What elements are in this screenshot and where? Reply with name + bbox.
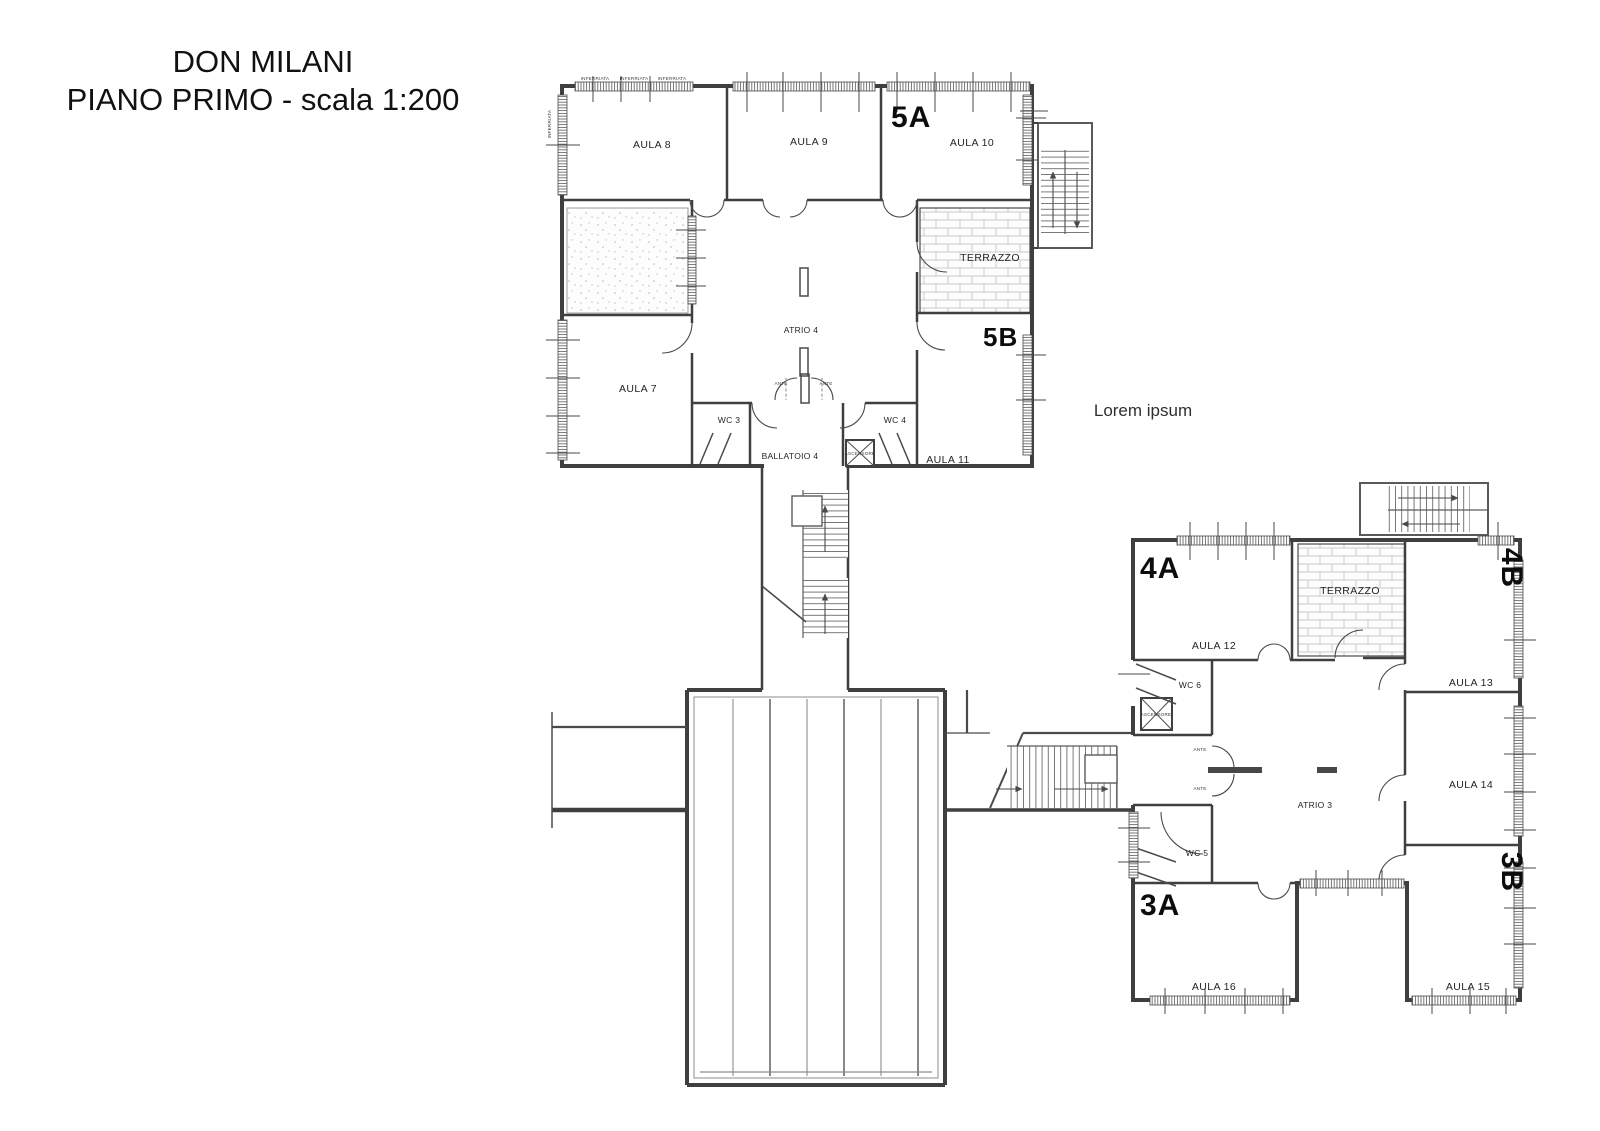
label-aula15: AULA 15 xyxy=(1446,981,1490,993)
upper-doors xyxy=(662,200,947,428)
label-ante-2: ANTE xyxy=(819,381,832,386)
upper-exterior-stair xyxy=(1032,123,1092,248)
label-atrio3: ATRIO 3 xyxy=(1298,800,1333,810)
stair-diagonal-wall xyxy=(762,586,806,622)
upper-door-leaves xyxy=(786,378,822,400)
label-inferriata-3: INFERRIATA xyxy=(658,76,687,81)
stair-landing-box xyxy=(792,496,822,526)
lower-doors xyxy=(1161,630,1405,899)
lower-exterior-stair xyxy=(1360,483,1488,535)
label-aula11: AULA 11 xyxy=(926,454,969,466)
label-aula14: AULA 14 xyxy=(1449,779,1493,791)
label-ante-4: ANTE xyxy=(1193,786,1206,791)
label-inferriata-1: INFERRIATA xyxy=(581,76,610,81)
lower-terrazzo-paving xyxy=(1298,544,1405,656)
label-atrio4: ATRIO 4 xyxy=(784,325,819,335)
atrio3-wall-stub-1 xyxy=(1208,767,1262,773)
label-3b: 3B xyxy=(1495,852,1528,892)
label-ante-3: ANTE xyxy=(1193,747,1206,752)
label-aula10: AULA 10 xyxy=(950,137,994,149)
label-aula16: AULA 16 xyxy=(1192,981,1236,993)
floor-plan-page: DON MILANI PIANO PRIMO - scala 1:200 Lor… xyxy=(0,0,1600,1131)
label-wc4: WC 4 xyxy=(884,415,906,425)
floor-plan-drawing: DON MILANI PIANO PRIMO - scala 1:200 Lor… xyxy=(0,0,1600,1131)
label-aula7: AULA 7 xyxy=(619,383,657,395)
central-stairwell xyxy=(762,466,848,690)
upper-building: AULA 8 AULA 9 AULA 10 5A TERRAZZO ATRIO … xyxy=(546,72,1092,466)
label-ante-1: ANTE xyxy=(774,381,787,386)
atrio3-wall-stub-2 xyxy=(1317,767,1337,773)
atrio4-pillars xyxy=(800,268,809,403)
title-line2: PIANO PRIMO - scala 1:200 xyxy=(67,82,460,117)
label-terrazzo-lower: TERRAZZO xyxy=(1320,585,1380,597)
lower-building: 4A 4B 3A 3B AULA 12 TERRAZZO AULA 13 WC … xyxy=(1118,483,1536,1014)
corridor-stair-landing xyxy=(1085,755,1117,783)
label-ascensore-lower: ASCENSORE xyxy=(1141,712,1172,717)
title-line1: DON MILANI xyxy=(173,44,354,79)
label-4a: 4A xyxy=(1140,552,1180,585)
lorem-ipsum-note: Lorem ipsum xyxy=(1094,401,1192,420)
label-4b: 4B xyxy=(1495,548,1528,588)
label-inferriata-2: INFERRIATA xyxy=(620,76,649,81)
label-wc6: WC 6 xyxy=(1179,680,1201,690)
upper-courtyard-texture xyxy=(567,208,688,313)
label-3a: 3A xyxy=(1140,889,1180,922)
east-corridor-stair xyxy=(945,690,1133,810)
label-inferriata-4: INFERRIATA xyxy=(547,109,552,138)
label-wc3: WC 3 xyxy=(718,415,740,425)
label-ballatoio4: BALLATOIO 4 xyxy=(762,451,819,461)
label-aula12: AULA 12 xyxy=(1192,640,1236,652)
label-5b: 5B xyxy=(983,322,1018,352)
west-corridor xyxy=(552,712,687,828)
title-block: DON MILANI PIANO PRIMO - scala 1:200 xyxy=(67,44,460,117)
label-wc5: WC 5 xyxy=(1186,848,1208,858)
great-hall xyxy=(687,690,945,1085)
label-terrazzo-upper: TERRAZZO xyxy=(960,252,1020,264)
label-aula13: AULA 13 xyxy=(1449,677,1493,689)
label-5a: 5A xyxy=(891,101,931,134)
label-aula9: AULA 9 xyxy=(790,136,828,148)
label-aula8: AULA 8 xyxy=(633,139,671,151)
hall-inner-line xyxy=(694,697,938,1078)
label-ascensore-upper: ASCENSORE xyxy=(845,451,876,456)
